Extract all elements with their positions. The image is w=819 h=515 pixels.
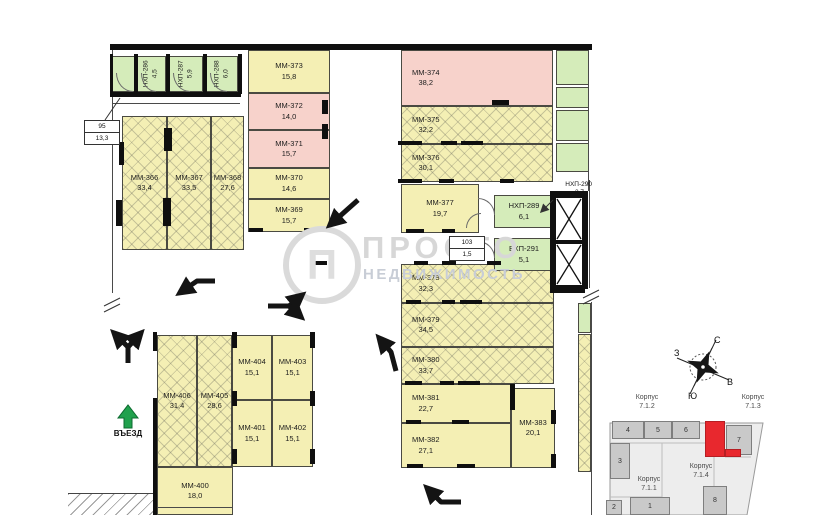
wall-segment bbox=[551, 410, 556, 424]
room-label: ММ-40215,1 bbox=[279, 423, 307, 443]
room-label: ММ-40115,1 bbox=[238, 423, 266, 443]
wall-segment bbox=[232, 391, 237, 406]
wall-segment bbox=[414, 261, 428, 265]
hall-label: НХП-290 3,7 bbox=[540, 181, 592, 198]
wall-segment bbox=[406, 229, 424, 233]
room-label: ММ-40528,6 bbox=[201, 391, 229, 411]
room-мм-368: ММ-36827,6 bbox=[211, 116, 244, 250]
room-label: ММ-37115,7 bbox=[275, 139, 303, 159]
room-unlabeled bbox=[578, 334, 591, 472]
room-label: ММ-37532,2 bbox=[402, 115, 440, 135]
room-вхп-291: ВХП-2915,1 bbox=[494, 238, 554, 271]
wall-segment bbox=[166, 54, 170, 94]
wall-segment bbox=[110, 92, 241, 97]
wall-segment bbox=[442, 261, 456, 265]
wall-segment bbox=[492, 100, 509, 105]
minimap-block-number: 2 bbox=[612, 504, 616, 511]
wall-segment bbox=[310, 332, 315, 348]
room-мм-371: ММ-37115,7 bbox=[248, 130, 330, 168]
minimap-block-1: 1 bbox=[630, 497, 670, 515]
direction-arrow bbox=[181, 281, 215, 292]
wall-segment bbox=[406, 420, 421, 424]
korpus-word: Корпус bbox=[680, 463, 722, 472]
callout-95: 95 13,3 bbox=[84, 120, 120, 145]
direction-arrow bbox=[268, 296, 301, 306]
compass-east-label: В bbox=[727, 377, 733, 387]
korpus-num: 7.1.1 bbox=[628, 485, 670, 494]
room-unlabeled bbox=[578, 303, 591, 333]
minimap-block-number: 8 bbox=[713, 497, 717, 504]
wall-segment bbox=[510, 384, 515, 410]
room-divider-line bbox=[157, 507, 233, 508]
wall-segment bbox=[134, 54, 138, 94]
compass-icon: С З В Ю bbox=[674, 335, 733, 401]
direction-arrow-fork bbox=[115, 334, 128, 363]
room-label: ММ-40018,0 bbox=[181, 481, 209, 501]
wall-segment bbox=[322, 100, 328, 114]
room-мм-380: ММ-38033,7 bbox=[401, 347, 554, 384]
wall-segment bbox=[116, 200, 122, 226]
room-мм-370: ММ-37014,6 bbox=[248, 168, 330, 199]
wall-segment bbox=[110, 54, 113, 94]
room-label: ММ-37315,8 bbox=[275, 61, 303, 81]
room-label: НХП-2896,1 bbox=[509, 201, 540, 221]
wall-segment bbox=[439, 179, 454, 183]
room-label: ММ-37438,2 bbox=[402, 68, 440, 88]
wall-segment bbox=[203, 54, 207, 94]
minimap-block-4: 4 bbox=[612, 421, 644, 439]
direction-arrow bbox=[428, 489, 461, 502]
korpus-label-712: Корпус 7.1.2 bbox=[626, 394, 668, 412]
wall-segment bbox=[238, 54, 242, 94]
room-label: ВХП-2915,1 bbox=[509, 244, 539, 264]
wall-segment bbox=[313, 261, 327, 265]
room-label: ММ-36915,7 bbox=[275, 205, 303, 225]
watermark-logo-glyph: П bbox=[307, 244, 337, 286]
wall-segment bbox=[153, 398, 157, 515]
wall-segment bbox=[163, 198, 171, 226]
room-мм-375: ММ-37532,2 bbox=[401, 106, 553, 144]
room-label: ММ-37014,6 bbox=[275, 173, 303, 193]
room-label: ММ-40315,1 bbox=[279, 357, 307, 377]
korpus-word: Корпус bbox=[626, 394, 668, 403]
korpus-num: 7.1.4 bbox=[680, 472, 722, 481]
wall-segment bbox=[249, 228, 263, 232]
entrance-arrow-icon bbox=[118, 405, 138, 428]
minimap-block-number: 4 bbox=[626, 427, 630, 434]
room-label: ММ-36827,6 bbox=[214, 173, 242, 193]
direction-arrow-fork bbox=[128, 334, 140, 347]
wall-segment bbox=[551, 454, 556, 468]
minimap-block-5: 5 bbox=[644, 421, 672, 439]
wall-segment bbox=[441, 141, 457, 145]
wall-segment bbox=[442, 300, 455, 304]
elevator-shaft-2 bbox=[556, 244, 582, 285]
ramp-hatch bbox=[68, 493, 156, 515]
wall-segment bbox=[500, 179, 514, 183]
minimap-block-number: 1 bbox=[648, 503, 652, 510]
room-unlabeled bbox=[556, 87, 589, 108]
room-мм-376: ММ-37630,1 bbox=[401, 144, 553, 182]
room-label: ММ-37719,7 bbox=[426, 198, 454, 218]
wall-segment bbox=[153, 332, 157, 351]
callout-103-number: 103 bbox=[450, 237, 484, 249]
wall-segment bbox=[322, 124, 328, 139]
elevator-shaft-1 bbox=[556, 198, 582, 240]
room-мм-366: ММ-36633,4 bbox=[122, 116, 167, 250]
floor-plan: НХП-2864,5НХП-2875,9НХП-2886,0ММ-36633,4… bbox=[0, 0, 819, 515]
room-unlabeled bbox=[556, 143, 589, 172]
room-label: ММ-37214,0 bbox=[275, 101, 303, 121]
room-мм-404: ММ-40415,1 bbox=[232, 335, 272, 400]
minimap-block-6: 6 bbox=[672, 421, 700, 439]
room-label: ММ-38033,7 bbox=[402, 355, 440, 375]
wall-segment bbox=[452, 420, 469, 424]
wall-segment bbox=[232, 449, 237, 464]
wall-segment bbox=[119, 142, 124, 165]
callout-95-area: 13,3 bbox=[85, 133, 119, 144]
direction-arrow bbox=[331, 200, 358, 224]
callout-103-area: 1,5 bbox=[450, 249, 484, 260]
wall-segment bbox=[110, 44, 592, 50]
entrance-label: ВЪЕЗД bbox=[104, 429, 152, 438]
room-label: ММ-38122,7 bbox=[402, 393, 440, 413]
boundary-line-right-lower bbox=[591, 300, 592, 515]
room-label: ММ-40415,1 bbox=[238, 357, 266, 377]
corridor-line-top bbox=[112, 103, 240, 104]
room-label: ММ-38227,1 bbox=[402, 435, 440, 455]
wall-segment bbox=[405, 381, 422, 385]
room-мм-379: ММ-37934,5 bbox=[401, 303, 554, 347]
room-мм-373: ММ-37315,8 bbox=[248, 50, 330, 93]
wall-segment bbox=[407, 464, 423, 468]
hall-label-name: НХП-290 bbox=[540, 181, 592, 189]
room-label: ММ-36733,5 bbox=[175, 173, 203, 193]
minimap-block-number: 5 bbox=[656, 427, 660, 434]
compass-north-label: С bbox=[714, 335, 721, 345]
room-мм-374: ММ-37438,2 bbox=[401, 50, 553, 106]
wall-segment bbox=[398, 141, 422, 145]
room-мм-401: ММ-40115,1 bbox=[232, 400, 272, 467]
boundary-line-right-upper bbox=[588, 50, 589, 191]
korpus-num: 7.1.3 bbox=[732, 403, 774, 412]
room-мм-381: ММ-38122,7 bbox=[401, 384, 511, 423]
wall-segment bbox=[460, 300, 482, 304]
wall-segment bbox=[310, 391, 315, 406]
room-мм-403: ММ-40315,1 bbox=[272, 335, 313, 400]
hall-label-area: 3,7 bbox=[540, 189, 592, 197]
minimap-block-number: 7 bbox=[737, 437, 741, 444]
wall-segment bbox=[487, 261, 501, 265]
minimap-block-3: 3 bbox=[610, 443, 630, 479]
wall-segment bbox=[398, 179, 422, 183]
minimap-current-building bbox=[725, 449, 741, 457]
wall-segment bbox=[310, 449, 315, 464]
minimap-current-building bbox=[705, 421, 725, 457]
wall-segment bbox=[458, 381, 480, 385]
room-мм-383: ММ-38320,1 bbox=[511, 388, 555, 468]
room-мм-382: ММ-38227,1 bbox=[401, 423, 511, 468]
wall-segment bbox=[406, 300, 421, 304]
minimap-block-2: 2 bbox=[606, 500, 622, 515]
room-label: ММ-36633,4 bbox=[131, 173, 159, 193]
room-unlabeled bbox=[556, 50, 589, 85]
room-label: ММ-40631,4 bbox=[163, 391, 191, 411]
room-мм-367: ММ-36733,5 bbox=[167, 116, 211, 250]
wall-segment bbox=[457, 464, 475, 468]
korpus-label-714: Корпус 7.1.4 bbox=[680, 463, 722, 481]
minimap-block-number: 6 bbox=[684, 427, 688, 434]
wall-segment bbox=[304, 228, 322, 232]
korpus-word: Корпус bbox=[732, 394, 774, 403]
room-нхп-289: НХП-2896,1 bbox=[494, 195, 554, 228]
minimap-block-8: 8 bbox=[703, 486, 727, 515]
room-label: ММ-37832,3 bbox=[402, 273, 440, 293]
wall-segment bbox=[164, 128, 172, 151]
callout-103: 103 1,5 bbox=[449, 236, 485, 261]
wall-segment bbox=[461, 141, 483, 145]
room-label: ММ-38320,1 bbox=[519, 418, 547, 438]
room-label: ММ-37630,1 bbox=[402, 153, 440, 173]
room-мм-405: ММ-40528,6 bbox=[197, 335, 232, 467]
direction-arrow bbox=[380, 339, 396, 371]
room-label: ММ-37934,5 bbox=[402, 315, 440, 335]
wall-segment bbox=[232, 332, 237, 348]
room-мм-402: ММ-40215,1 bbox=[272, 400, 313, 467]
compass-south-label: Ю bbox=[688, 391, 697, 401]
korpus-word: Корпус bbox=[628, 476, 670, 485]
watermark-logo: П bbox=[283, 226, 361, 304]
compass-west-label: З bbox=[674, 348, 679, 358]
room-мм-372: ММ-37214,0 bbox=[248, 93, 330, 130]
room-unlabeled bbox=[556, 110, 589, 141]
minimap-block-number: 3 bbox=[618, 458, 622, 465]
callout-95-number: 95 bbox=[85, 121, 119, 133]
direction-arrow bbox=[289, 306, 300, 316]
korpus-label-711: Корпус 7.1.1 bbox=[628, 476, 670, 494]
wall-segment bbox=[440, 381, 454, 385]
wall-segment bbox=[442, 229, 455, 233]
room-мм-406: ММ-40631,4 bbox=[157, 335, 197, 467]
korpus-label-713: Корпус 7.1.3 bbox=[732, 394, 774, 412]
korpus-num: 7.1.2 bbox=[626, 403, 668, 412]
